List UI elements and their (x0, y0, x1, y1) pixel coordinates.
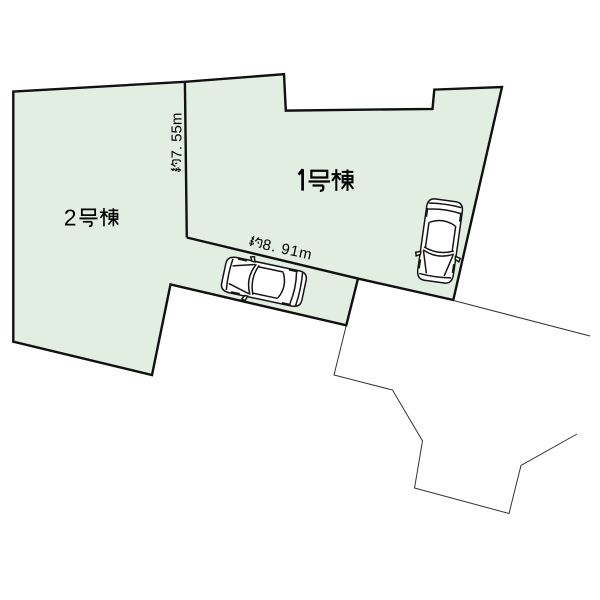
svg-text:2: 2 (64, 205, 77, 231)
svg-text:7. 55m: 7. 55m (169, 113, 186, 159)
